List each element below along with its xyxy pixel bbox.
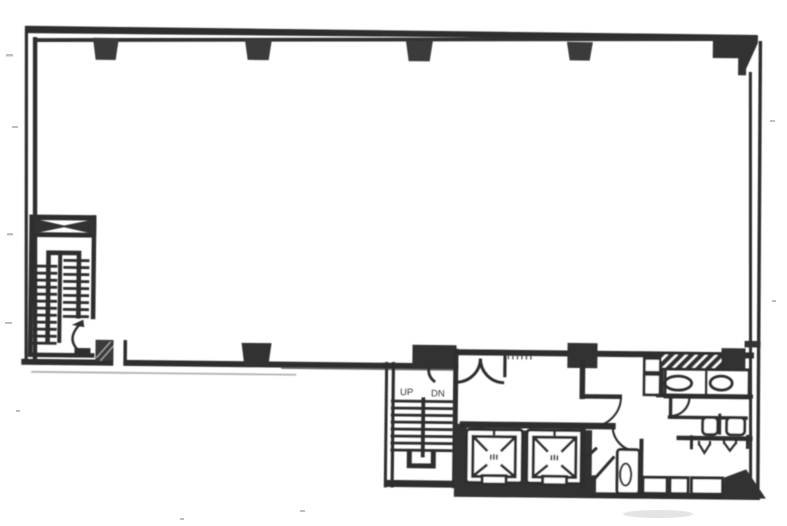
svg-text:UP: UP xyxy=(400,387,413,398)
svg-text:DN: DN xyxy=(431,388,445,399)
